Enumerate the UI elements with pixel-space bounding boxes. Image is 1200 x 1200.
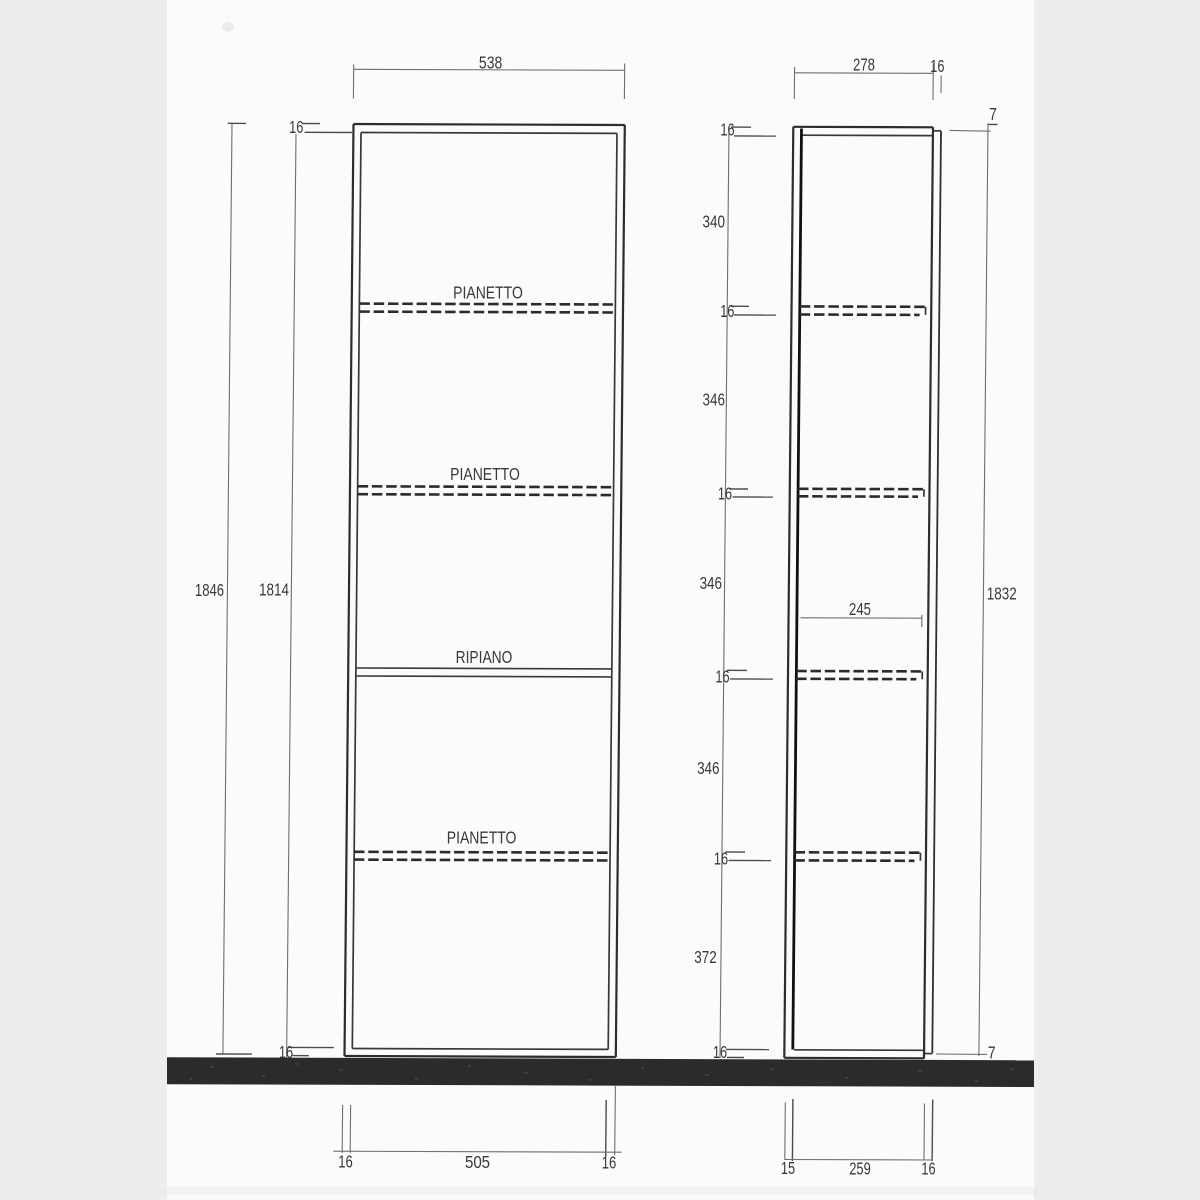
svg-text:16: 16 [720, 302, 734, 321]
svg-text:16: 16 [602, 1154, 617, 1173]
svg-text:505: 505 [465, 1153, 490, 1172]
svg-text:16: 16 [718, 485, 732, 504]
svg-text:15: 15 [781, 1159, 795, 1178]
svg-text:346: 346 [697, 759, 719, 778]
svg-text:RIPIANO: RIPIANO [456, 649, 513, 668]
svg-text:PIANETTO: PIANETTO [447, 829, 517, 848]
svg-text:16: 16 [720, 121, 734, 140]
svg-text:7: 7 [988, 1044, 996, 1063]
svg-text:538: 538 [479, 54, 503, 73]
svg-text:PIANETTO: PIANETTO [453, 284, 523, 303]
svg-text:1814: 1814 [259, 581, 289, 600]
svg-text:245: 245 [849, 600, 871, 619]
svg-text:1832: 1832 [987, 585, 1017, 604]
svg-text:346: 346 [700, 574, 722, 593]
svg-text:1846: 1846 [195, 581, 224, 600]
svg-text:PIANETTO: PIANETTO [450, 466, 520, 485]
svg-text:16: 16 [338, 1153, 353, 1172]
svg-text:16: 16 [921, 1160, 935, 1179]
svg-text:16: 16 [930, 57, 944, 76]
svg-text:259: 259 [849, 1160, 871, 1179]
svg-text:16: 16 [714, 850, 728, 869]
svg-text:16: 16 [715, 668, 729, 687]
svg-text:278: 278 [853, 56, 875, 75]
svg-text:372: 372 [694, 948, 716, 967]
svg-text:7: 7 [989, 106, 997, 125]
svg-text:340: 340 [702, 213, 725, 232]
svg-text:346: 346 [702, 391, 724, 410]
